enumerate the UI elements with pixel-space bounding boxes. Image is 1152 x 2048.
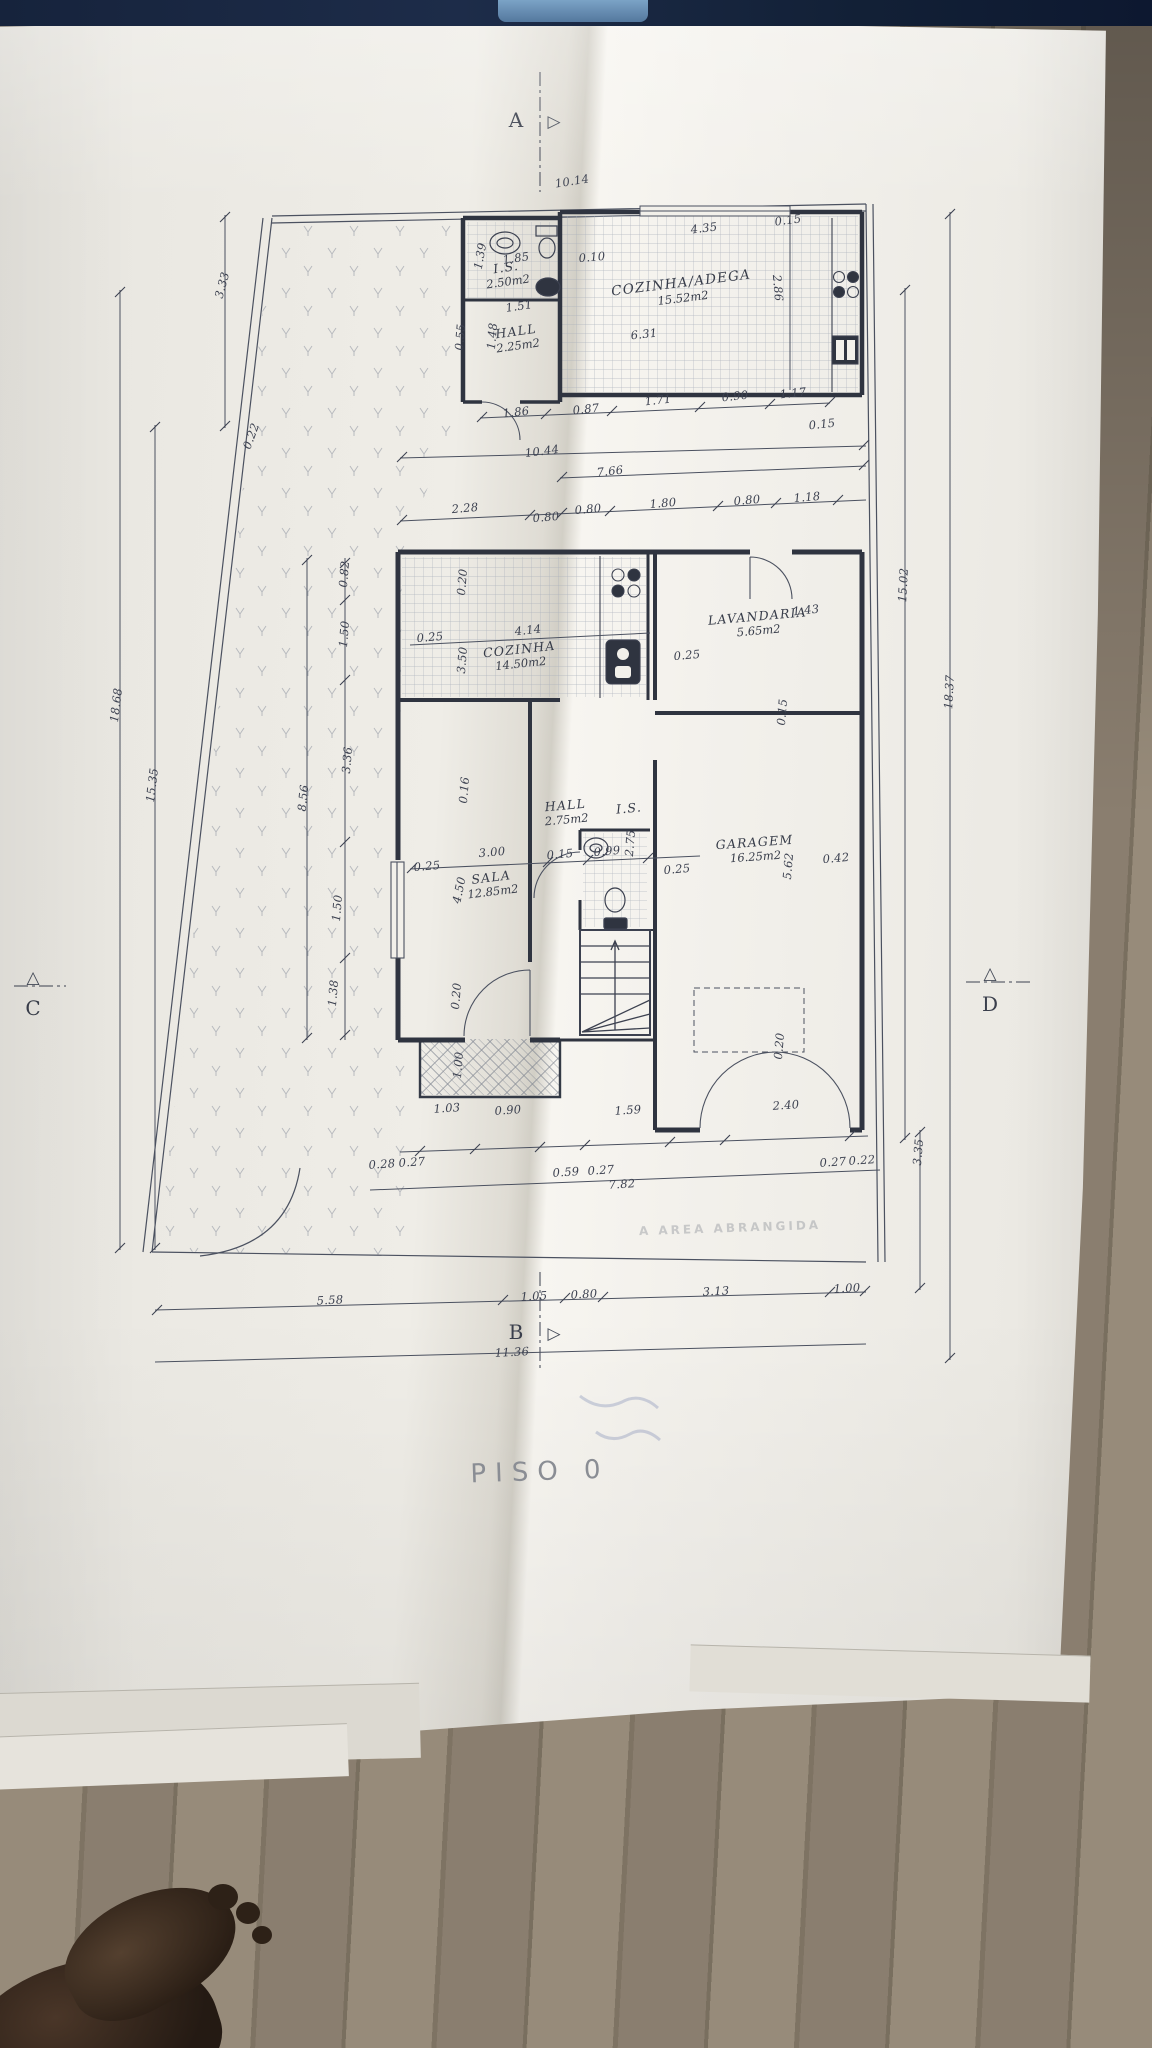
dimension-label: 11.36 (494, 1344, 529, 1360)
dimension-label: 0.15 (774, 698, 790, 726)
dimension-label: 2.28 (451, 500, 479, 516)
dimension-label: 0.42 (822, 850, 850, 866)
dimension-label: 0.90 (494, 1102, 522, 1118)
dimension-label: 0.82 (336, 560, 352, 588)
dimension-label: 5.58 (316, 1292, 344, 1307)
dimension-label: 1.05 (520, 1288, 548, 1303)
dimension-label: 1.17 (779, 385, 807, 402)
room-label: LAVANDARIA5.65m2 (707, 604, 808, 642)
dimension-label: 0.99 (593, 843, 621, 859)
dimension-label: 1.80 (649, 495, 677, 511)
foot-silhouette (0, 1840, 320, 2048)
dimension-label: 0.22 (848, 1152, 876, 1168)
dimension-label: 1.00 (833, 1280, 861, 1295)
dimension-label: 0.28 (368, 1156, 396, 1172)
dimension-label: 0.80 (532, 509, 560, 525)
dimension-label: 3.50 (454, 646, 470, 674)
faint-stamp-text: A AREA ABRANGIDA (639, 1218, 822, 1238)
dimension-label: 10.14 (554, 171, 590, 190)
section-marker-d-triangle-icon: △ (983, 964, 996, 984)
dimension-label: 0.25 (413, 858, 441, 874)
section-marker-d: D (982, 992, 998, 1016)
dimension-label: 7.82 (608, 1176, 636, 1192)
room-label: I.S.2.50m2 (483, 257, 530, 292)
section-marker-a: A (509, 108, 523, 132)
dimension-label: 0.55 (452, 323, 468, 351)
dimension-label: 0.27 (587, 1162, 615, 1178)
dimension-label: 0.25 (673, 647, 701, 663)
section-marker-a-triangle-icon: ▷ (547, 112, 560, 132)
dimension-label: 3.00 (478, 844, 506, 860)
room-label: COZINHA14.50m2 (482, 638, 557, 674)
dimension-label: 10.44 (524, 442, 560, 460)
dimension-label: 0.80 (574, 501, 602, 517)
dimension-label: 1.50 (336, 620, 352, 648)
room-label: GARAGEM16.25m2 (715, 832, 795, 866)
dimension-label: 2.40 (772, 1097, 800, 1113)
dimension-label: 4.35 (690, 219, 718, 236)
dimension-label: 3.36 (339, 746, 355, 774)
room-label: I.S. (615, 799, 642, 816)
dimension-label: 3.13 (702, 1283, 730, 1298)
dimension-label: 1.03 (433, 1100, 461, 1116)
dimension-label: 0.15 (808, 416, 836, 433)
dimension-label: 7.66 (596, 463, 624, 480)
dimension-label: 1.00 (450, 1051, 466, 1079)
dimension-label: 0.80 (570, 1286, 598, 1301)
dimension-label: 0.25 (663, 861, 691, 877)
dimension-label: 1.38 (325, 979, 341, 1007)
section-marker-c-triangle-icon: △ (26, 968, 39, 988)
dimension-label: 0.25 (416, 629, 444, 645)
dimension-label: 15.02 (895, 567, 911, 602)
table-edge-highlight (498, 0, 648, 22)
dimension-label: 0.15 (546, 846, 574, 862)
dimension-label: 0.20 (454, 568, 470, 596)
toe-shape (252, 1926, 272, 1944)
dimension-label: 1.51 (505, 297, 534, 315)
dimension-label: 1.71 (644, 392, 672, 409)
dimension-label: 0.27 (819, 1154, 847, 1170)
dimension-label: 1.86 (502, 404, 530, 421)
dimension-label: 15.35 (143, 767, 161, 803)
dimension-label: 0.20 (771, 1032, 787, 1060)
dimension-label: 0.10 (578, 249, 606, 265)
dimension-label: 2.75 (622, 829, 638, 857)
dimension-label: 0.80 (733, 492, 761, 508)
room-area: 2.75m2 (544, 811, 589, 829)
dimension-label: 0.87 (572, 401, 600, 418)
section-marker-b-triangle-icon: ▷ (547, 1324, 560, 1344)
room-label: SALA12.85m2 (465, 866, 519, 901)
dimension-label: 0.22 (240, 421, 262, 451)
dimension-label: 0.59 (552, 1164, 580, 1180)
section-marker-c: C (25, 996, 40, 1020)
dimension-label: 1.18 (793, 489, 821, 505)
dimension-label: 0.90 (721, 388, 749, 405)
dimension-label: 1.59 (614, 1102, 642, 1118)
dimension-label: 4.14 (514, 622, 542, 639)
floor-title: PISO 0 (470, 1455, 610, 1490)
dimension-label: 3.35 (910, 1138, 926, 1166)
room-name: I.S. (615, 799, 642, 816)
dimension-label: 3.33 (212, 270, 232, 300)
room-label: HALL2.25m2 (493, 321, 540, 356)
toe-shape (236, 1902, 260, 1924)
photo-of-floorplan: 10.144.350.150.101.851.392.861.510.551.4… (0, 0, 1152, 2048)
dimension-label: 0.15 (774, 211, 802, 228)
dimension-label: 0.27 (398, 1154, 426, 1170)
dimension-label: 8.56 (295, 784, 312, 812)
dimension-label: 1.50 (329, 894, 345, 922)
room-label: COZINHA/ADEGA15.52m2 (610, 267, 753, 314)
dimension-label: 18.37 (941, 674, 957, 709)
room-label: HALL2.75m2 (543, 796, 589, 829)
dimension-label: 2.86 (770, 274, 786, 302)
section-marker-b: B (509, 1320, 524, 1344)
dimension-label: 18.68 (107, 687, 125, 723)
dimension-label: 0.20 (448, 982, 464, 1010)
dimension-label: 6.31 (630, 326, 658, 343)
dimension-label: 0.16 (456, 776, 472, 804)
toe-shape (208, 1884, 238, 1910)
